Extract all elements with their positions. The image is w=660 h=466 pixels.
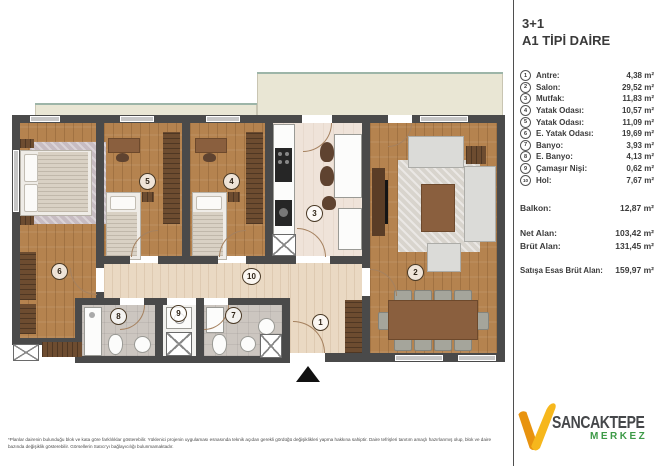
room-area: 0,62 m² bbox=[626, 164, 654, 173]
wall bbox=[182, 122, 190, 264]
wardrobe bbox=[20, 252, 36, 300]
nightstand bbox=[20, 139, 34, 148]
bed-blanket bbox=[193, 212, 223, 256]
sink-bowl bbox=[279, 208, 288, 217]
room-num-badge: 1 bbox=[520, 70, 531, 81]
logo-v-icon bbox=[516, 400, 556, 456]
room-label: Salon: bbox=[536, 83, 560, 92]
room-marker-9: 9 bbox=[170, 305, 187, 322]
window bbox=[395, 355, 443, 361]
wardrobe bbox=[246, 132, 263, 224]
room-label: Hol: bbox=[536, 176, 552, 185]
satis-label: Satışa Esas Brüt Alan: bbox=[520, 266, 603, 275]
pillow bbox=[24, 184, 38, 212]
balkon-row: Balkon: 12,87 m² bbox=[520, 203, 654, 213]
balkon-label: Balkon: bbox=[520, 203, 551, 213]
disclaimer-text: *Planlar dairenin bulunduğu blok ve kata… bbox=[8, 436, 506, 450]
satis-row: Satışa Esas Brüt Alan: 159,97 m² bbox=[520, 265, 654, 275]
window bbox=[458, 355, 496, 361]
room-marker-5: 5 bbox=[139, 173, 156, 190]
nightstand bbox=[20, 216, 34, 225]
wall bbox=[362, 122, 370, 268]
burner bbox=[285, 160, 289, 164]
window bbox=[13, 150, 19, 212]
bed-blanket bbox=[38, 152, 88, 212]
desk bbox=[108, 138, 140, 153]
room-label: Banyo: bbox=[536, 141, 563, 150]
brut-alan-row: Brüt Alan: 131,45 m² bbox=[520, 241, 654, 251]
entry-cabinet bbox=[345, 300, 362, 353]
room-label: Yatak Odası: bbox=[536, 118, 584, 127]
entrance-opening bbox=[292, 353, 325, 362]
room-marker-7: 7 bbox=[225, 307, 242, 324]
floorplan: 1 2 3 4 5 6 7 8 9 10 bbox=[0, 0, 510, 430]
shaft bbox=[166, 332, 192, 356]
room-label: Mutfak: bbox=[536, 94, 564, 103]
wall bbox=[158, 256, 218, 264]
room-num-badge: 3 bbox=[520, 93, 531, 104]
chair bbox=[320, 142, 334, 162]
pillow bbox=[24, 154, 38, 182]
room-num-badge: 9 bbox=[520, 163, 531, 174]
window bbox=[206, 116, 240, 122]
room-row: 8 E. Banyo: 4,13 m² bbox=[520, 151, 654, 163]
room-area: 4,38 m² bbox=[626, 71, 654, 80]
nightstand bbox=[228, 192, 240, 202]
armchair bbox=[427, 243, 461, 272]
room-list: 1 Antre: 4,38 m² 2 Salon: 29,52 m² 3 Mut… bbox=[520, 70, 654, 186]
net-alan-value: 103,42 m² bbox=[615, 228, 654, 238]
wall bbox=[96, 122, 104, 264]
shower-head bbox=[89, 312, 95, 318]
room-label: Yatak Odası: bbox=[536, 106, 584, 115]
desk bbox=[195, 138, 227, 153]
room-marker-2: 2 bbox=[407, 264, 424, 281]
info-panel: 3+1 A1 TİPİ DAİRE 1 Antre: 4,38 m² 2 Sal… bbox=[520, 0, 654, 466]
room-label: Çamaşır Nişi: bbox=[536, 164, 587, 173]
unit-type: 3+1 bbox=[522, 16, 610, 33]
room-row: 9 Çamaşır Nişi: 0,62 m² bbox=[520, 163, 654, 175]
exterior-unit bbox=[42, 342, 82, 357]
balkon-value: 12,87 m² bbox=[620, 203, 654, 213]
burner bbox=[278, 152, 282, 156]
wall bbox=[96, 264, 104, 268]
room-row: 6 E. Yatak Odası: 19,69 m² bbox=[520, 128, 654, 140]
toilet bbox=[108, 334, 123, 355]
nightstand bbox=[142, 192, 154, 202]
room-row: 4 Yatak Odası: 10,57 m² bbox=[520, 105, 654, 117]
unit-name: A1 TİPİ DAİRE bbox=[522, 33, 610, 50]
satis-value: 159,97 m² bbox=[615, 265, 654, 275]
window bbox=[420, 116, 468, 122]
sofa-corner bbox=[464, 166, 496, 242]
bathroom-sink bbox=[134, 336, 151, 353]
shaft bbox=[13, 344, 39, 361]
room-num-badge: 6 bbox=[520, 128, 531, 139]
side-table bbox=[466, 146, 486, 164]
room-marker-6: 6 bbox=[51, 263, 68, 280]
logo-sub: MERKEZ bbox=[590, 431, 647, 442]
room-marker-4: 4 bbox=[223, 173, 240, 190]
wall bbox=[155, 298, 163, 363]
burner bbox=[285, 152, 289, 156]
kitchen-cabinet bbox=[338, 208, 362, 250]
net-alan-label: Net Alan: bbox=[520, 228, 557, 238]
burner bbox=[278, 160, 282, 164]
room-area: 3,93 m² bbox=[626, 141, 654, 150]
wardrobe bbox=[163, 132, 180, 224]
room-row: 5 Yatak Odası: 11,09 m² bbox=[520, 116, 654, 128]
room-label: Antre: bbox=[536, 71, 560, 80]
pillow bbox=[110, 196, 136, 210]
shaft bbox=[260, 334, 282, 358]
wall bbox=[362, 296, 370, 360]
sofa bbox=[408, 136, 464, 168]
tv-unit bbox=[372, 168, 385, 236]
room-num-badge: 4 bbox=[520, 105, 531, 116]
wall bbox=[497, 115, 505, 362]
room-row: 10 Hol: 7,67 m² bbox=[520, 174, 654, 186]
bathroom-sink bbox=[240, 336, 256, 352]
room-marker-10: 10 bbox=[242, 268, 261, 285]
brut-alan-value: 131,45 m² bbox=[615, 241, 654, 251]
tv bbox=[385, 180, 388, 224]
room-area: 4,13 m² bbox=[626, 152, 654, 161]
room-row: 2 Salon: 29,52 m² bbox=[520, 82, 654, 94]
shower bbox=[84, 307, 102, 356]
chair bbox=[320, 166, 334, 186]
brut-alan-label: Brüt Alan: bbox=[520, 241, 561, 251]
wall bbox=[246, 256, 296, 264]
desk-chair bbox=[116, 153, 129, 162]
toilet bbox=[212, 334, 227, 355]
room-num-badge: 5 bbox=[520, 117, 531, 128]
wall bbox=[196, 305, 204, 363]
wall bbox=[75, 356, 290, 363]
wall bbox=[282, 298, 290, 356]
pillow bbox=[196, 196, 222, 210]
stove bbox=[275, 148, 292, 182]
dining-table bbox=[388, 300, 478, 340]
logo: SANCAKTEPE MERKEZ bbox=[516, 398, 658, 458]
desk-chair bbox=[203, 153, 216, 162]
room-row: 1 Antre: 4,38 m² bbox=[520, 70, 654, 82]
room-area: 29,52 m² bbox=[622, 83, 654, 92]
room-marker-3: 3 bbox=[306, 205, 323, 222]
wall bbox=[196, 298, 204, 305]
balcony-right bbox=[257, 72, 503, 119]
window bbox=[30, 116, 60, 122]
room-area: 10,57 m² bbox=[622, 106, 654, 115]
shaft bbox=[272, 234, 296, 256]
kitchen-table bbox=[334, 134, 362, 198]
room-num-badge: 7 bbox=[520, 140, 531, 151]
window bbox=[120, 116, 154, 122]
chair bbox=[322, 196, 336, 210]
room-num-badge: 10 bbox=[520, 175, 531, 186]
wall bbox=[228, 298, 290, 305]
bathroom-sink bbox=[258, 318, 275, 335]
dresser bbox=[20, 304, 36, 334]
room-num-badge: 8 bbox=[520, 151, 531, 162]
panel-divider bbox=[513, 0, 514, 466]
unit-title: 3+1 A1 TİPİ DAİRE bbox=[522, 16, 610, 50]
net-alan-row: Net Alan: 103,42 m² bbox=[520, 228, 654, 238]
wall bbox=[96, 256, 130, 264]
room-area: 7,67 m² bbox=[626, 176, 654, 185]
room-marker-8: 8 bbox=[110, 308, 127, 325]
room-label: E. Yatak Odası: bbox=[536, 129, 594, 138]
logo-name: SANCAKTEPE bbox=[552, 412, 644, 433]
room-area: 11,83 m² bbox=[622, 94, 654, 103]
kitchen-sink bbox=[275, 200, 292, 226]
room-area: 19,69 m² bbox=[622, 129, 654, 138]
door-opening bbox=[302, 115, 332, 123]
room-area: 11,09 m² bbox=[622, 118, 654, 127]
wall bbox=[330, 256, 362, 264]
room-label: E. Banyo: bbox=[536, 152, 573, 161]
door-opening bbox=[388, 115, 412, 123]
room-row: 3 Mutfak: 11,83 m² bbox=[520, 93, 654, 105]
room-marker-1: 1 bbox=[312, 314, 329, 331]
room-row: 7 Banyo: 3,93 m² bbox=[520, 140, 654, 152]
room-num-badge: 2 bbox=[520, 82, 531, 93]
entrance-arrow-icon bbox=[296, 366, 320, 382]
coffee-table bbox=[421, 184, 455, 232]
